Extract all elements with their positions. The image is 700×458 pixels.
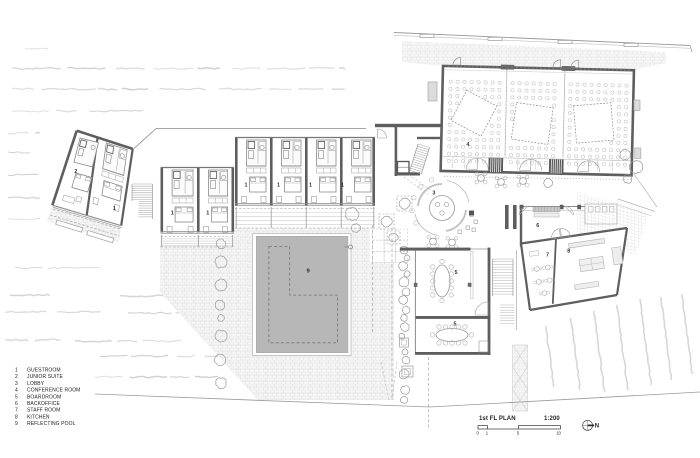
svg-text:JUNIOR SUITE: JUNIOR SUITE (27, 374, 63, 380)
svg-text:1st FL PLAN: 1st FL PLAN (479, 416, 516, 422)
svg-text:BACKOFFICE: BACKOFFICE (27, 401, 61, 407)
svg-text:6: 6 (15, 401, 18, 407)
svg-text:4: 4 (15, 388, 18, 394)
svg-text:GUESTROOM: GUESTROOM (27, 368, 61, 374)
svg-text:7: 7 (15, 408, 18, 414)
svg-text:4: 4 (466, 142, 469, 148)
svg-text:2: 2 (15, 374, 18, 380)
svg-text:7: 7 (546, 253, 549, 259)
svg-text:CONFERENCE ROOM: CONFERENCE ROOM (27, 388, 80, 394)
svg-text:8: 8 (15, 414, 18, 420)
svg-text:1: 1 (171, 211, 174, 217)
svg-text:5: 5 (15, 394, 18, 400)
svg-text:10: 10 (556, 431, 561, 436)
svg-text:N: N (595, 424, 599, 430)
svg-text:BOARDROOM: BOARDROOM (27, 394, 61, 400)
svg-text:6: 6 (536, 223, 539, 229)
svg-text:2: 2 (74, 169, 77, 175)
svg-text:1: 1 (309, 182, 312, 188)
svg-text:REFLECTING POOL: REFLECTING POOL (27, 421, 76, 427)
svg-text:LOBBY: LOBBY (27, 381, 45, 387)
svg-text:9: 9 (15, 421, 18, 427)
svg-text:1: 1 (277, 182, 280, 188)
svg-text:3: 3 (432, 190, 435, 196)
svg-text:KITCHEN: KITCHEN (27, 414, 50, 420)
svg-text:3: 3 (15, 381, 18, 387)
svg-text:STAFF ROOM: STAFF ROOM (27, 408, 60, 414)
svg-text:1:200: 1:200 (544, 416, 560, 422)
svg-text:1: 1 (245, 182, 248, 188)
svg-text:5: 5 (455, 270, 458, 276)
svg-text:8: 8 (567, 249, 570, 255)
svg-text:5: 5 (454, 322, 457, 328)
svg-text:1: 1 (15, 368, 18, 374)
svg-text:1: 1 (206, 211, 209, 217)
svg-text:1: 1 (113, 206, 116, 212)
svg-text:1: 1 (341, 182, 344, 188)
